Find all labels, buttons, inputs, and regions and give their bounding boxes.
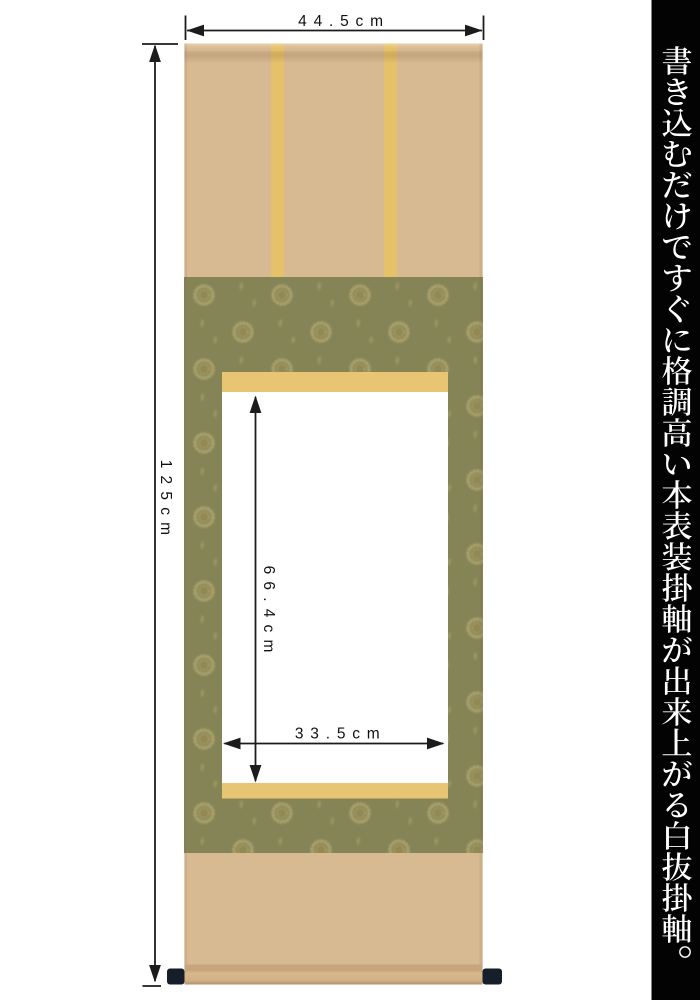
svg-text:66.4cm: 66.4cm bbox=[260, 566, 277, 660]
svg-text:44.5cm: 44.5cm bbox=[298, 13, 390, 30]
svg-text:125cm: 125cm bbox=[157, 460, 174, 543]
svg-text:33.5cm: 33.5cm bbox=[295, 726, 387, 743]
